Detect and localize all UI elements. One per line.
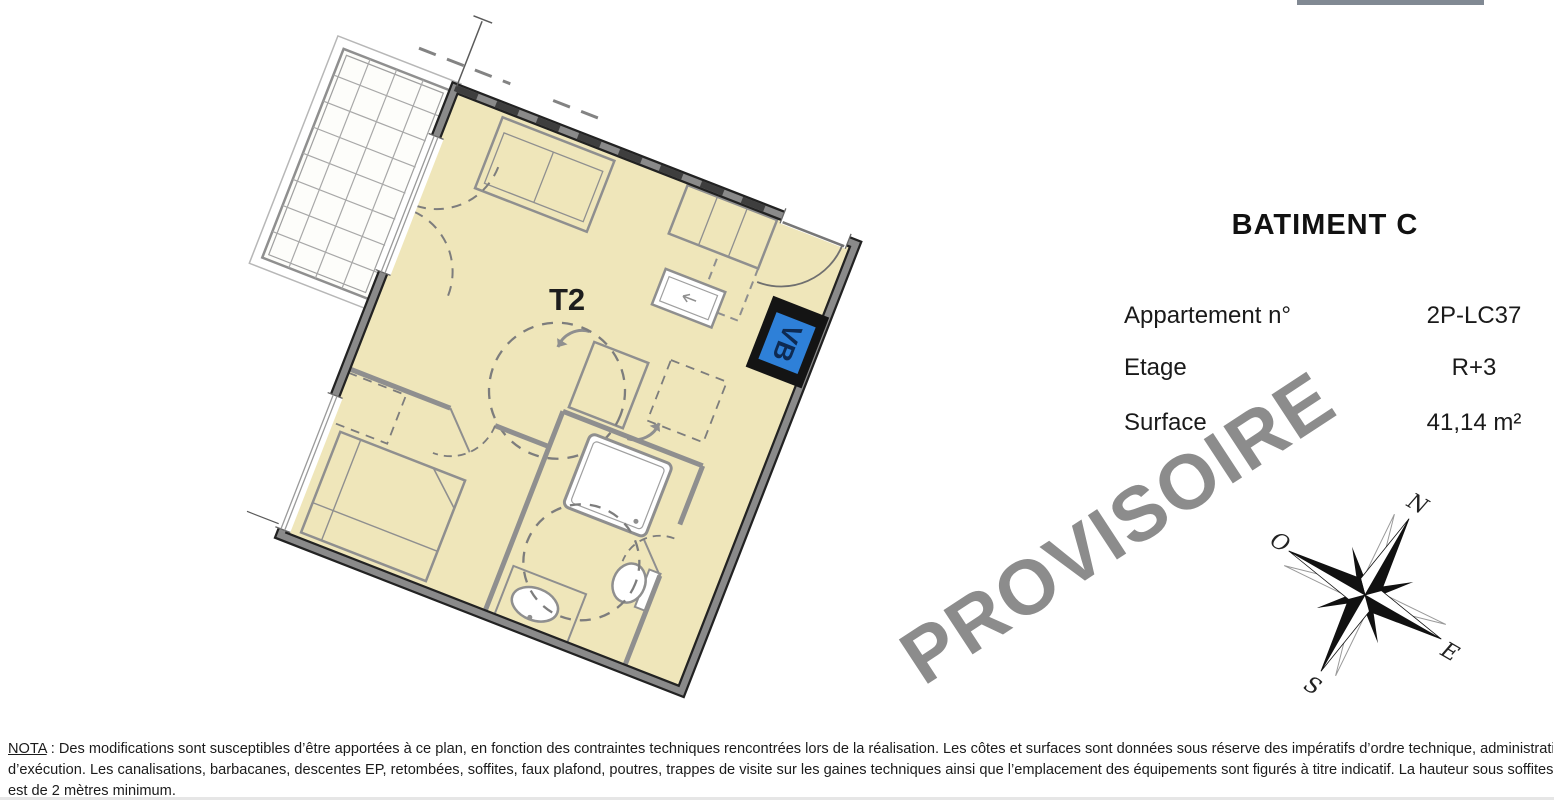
compass-east-label: E — [1436, 637, 1463, 667]
nota-label: NOTA — [8, 741, 47, 757]
compass-south-label: S — [1299, 672, 1325, 701]
floor-label: Etage — [1124, 354, 1187, 382]
compass-west-label: O — [1266, 527, 1294, 558]
nota-line-2: d’exécution. Les canalisations, barbacan… — [8, 760, 1553, 781]
floor-plan-sheet: VB — [0, 0, 1554, 800]
nota-line-1: NOTA : Des modifications sont susceptibl… — [8, 739, 1553, 760]
cropped-banner — [1297, 0, 1484, 5]
apartment-number-label: Appartement n° — [1124, 302, 1291, 330]
nota-disclaimer: NOTA : Des modifications sont susceptibl… — [8, 739, 1553, 800]
compass-north-label: N — [1402, 488, 1433, 520]
nota-line-1-text: : Des modifications sont susceptibles d’… — [47, 741, 1553, 757]
building-title: BATIMENT C — [1140, 209, 1510, 242]
apartment-plan: VB — [161, 0, 884, 692]
room-type-label: T2 — [549, 282, 585, 318]
compass-main-points — [1245, 475, 1485, 715]
